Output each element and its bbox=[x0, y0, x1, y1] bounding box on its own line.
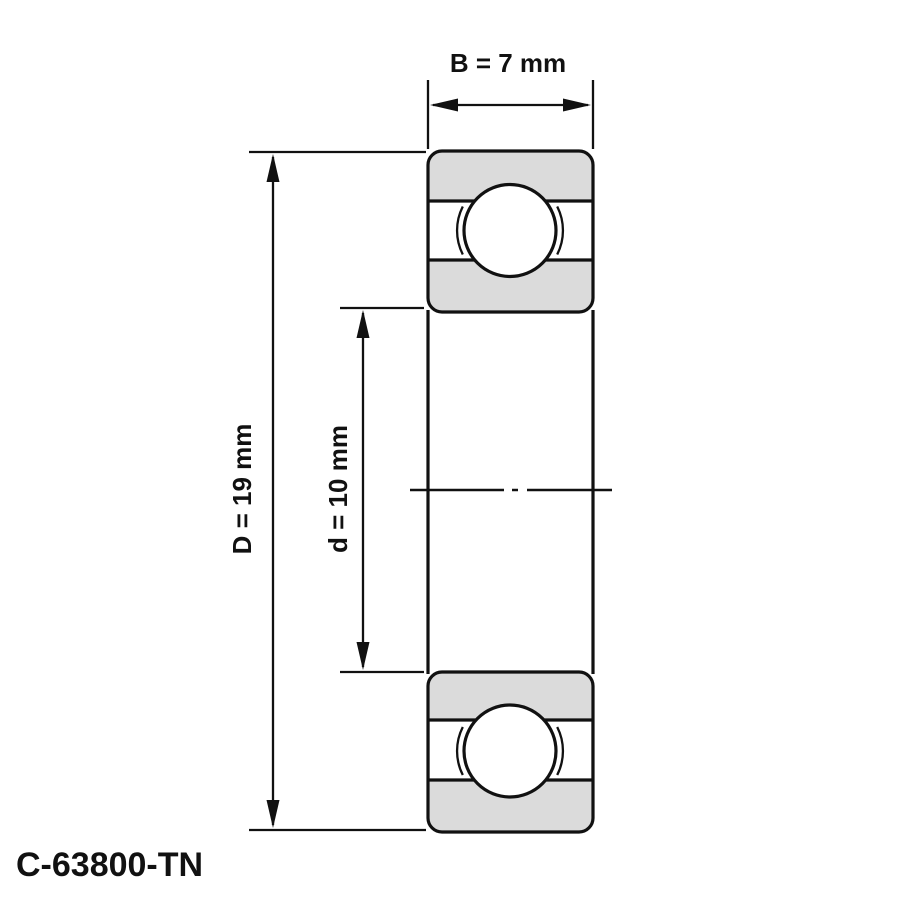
label-outer-diameter-D: D = 19 mm bbox=[227, 424, 257, 555]
arrowhead-B-right bbox=[563, 99, 591, 112]
bearing-section-bottom bbox=[428, 672, 593, 832]
label-bore-diameter-d: d = 10 mm bbox=[323, 425, 353, 553]
label-width-B: B = 7 mm bbox=[450, 48, 566, 78]
bearing-section-top bbox=[428, 151, 593, 312]
arrowhead-D-top bbox=[267, 154, 280, 182]
bearing-cross-section-drawing: B = 7 mm D = 19 mm d = 10 mm C-63800-TN bbox=[0, 0, 900, 900]
arrowhead-D-bottom bbox=[267, 800, 280, 828]
ball-top bbox=[464, 185, 556, 277]
part-number: C-63800-TN bbox=[16, 846, 203, 884]
drawing-lines bbox=[249, 80, 612, 832]
arrowhead-B-left bbox=[430, 99, 458, 112]
dimension-B bbox=[428, 80, 593, 149]
ball-bottom bbox=[464, 705, 556, 797]
arrowhead-d-top bbox=[357, 310, 370, 338]
bearing-drawing-canvas: B = 7 mm D = 19 mm d = 10 mm C-63800-TN bbox=[0, 0, 900, 900]
arrowhead-d-bottom bbox=[357, 642, 370, 670]
